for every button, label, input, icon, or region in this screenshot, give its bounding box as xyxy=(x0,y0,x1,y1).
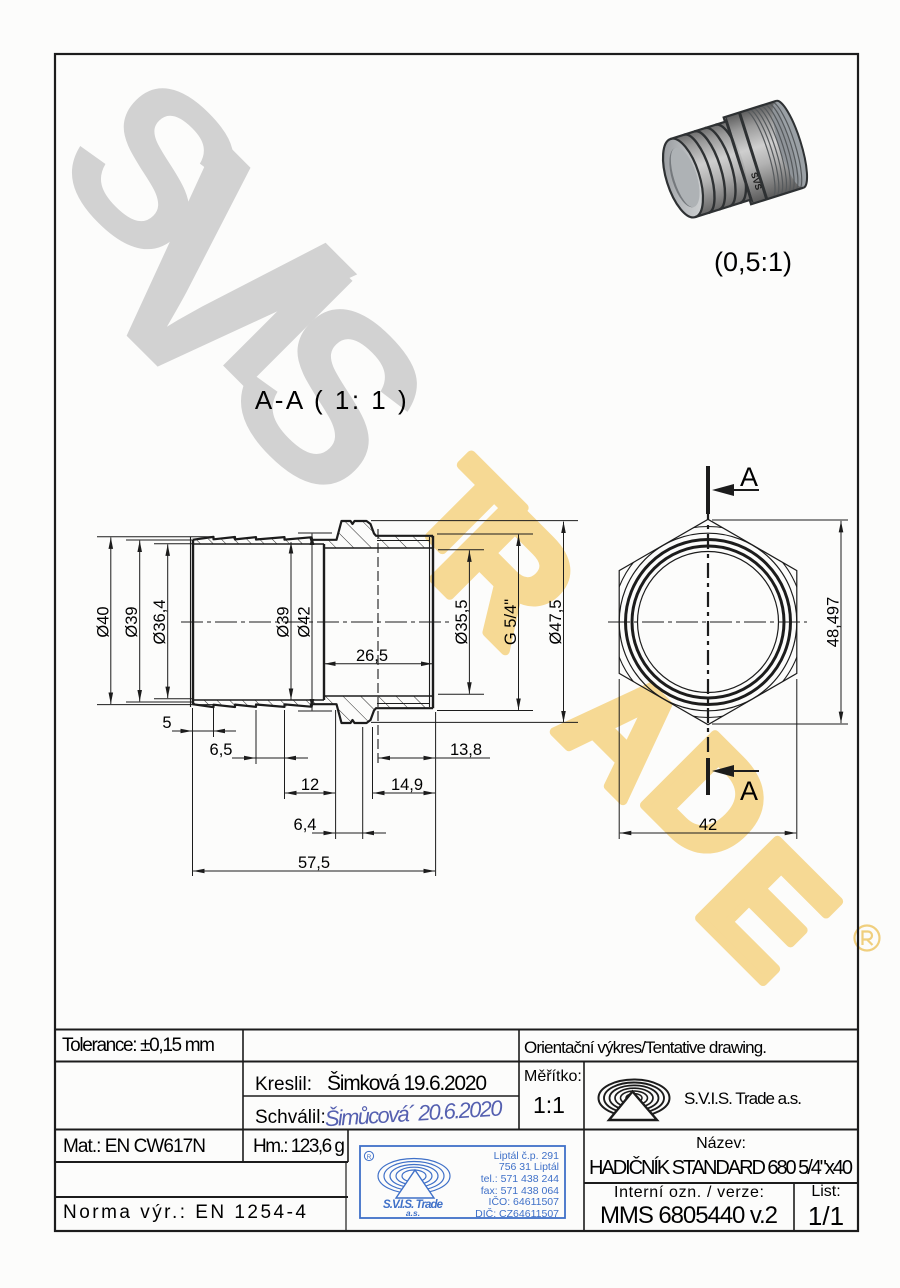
svg-text:12: 12 xyxy=(301,776,319,794)
svg-text:Orientační výkres/Tentative dr: Orientační výkres/Tentative drawing. xyxy=(524,1038,767,1057)
svg-text:R: R xyxy=(367,1154,372,1161)
svg-text:Ø47,5: Ø47,5 xyxy=(547,600,565,645)
svg-text:Ø40: Ø40 xyxy=(94,606,112,637)
svg-text:HADIČNÍK STANDARD 680 5/4"x40: HADIČNÍK STANDARD 680 5/4"x40 xyxy=(589,1156,853,1179)
svg-text:1/1: 1/1 xyxy=(808,1201,844,1231)
svg-text:42: 42 xyxy=(699,816,717,834)
svg-text:Ø35,5: Ø35,5 xyxy=(453,600,471,645)
svg-text:A-A ( 1: 1 ): A-A ( 1: 1 ) xyxy=(255,385,409,415)
svg-text:Mat.: EN CW617N: Mat.: EN CW617N xyxy=(63,1136,206,1157)
svg-text:Název:: Název: xyxy=(696,1135,746,1152)
svg-text:Tolerance: ±0,15 mm: Tolerance: ±0,15 mm xyxy=(62,1035,215,1056)
svg-text:S.V.I.S. Trade a.s.: S.V.I.S. Trade a.s. xyxy=(684,1089,802,1108)
svg-text:A: A xyxy=(740,462,758,492)
svg-text:6,5: 6,5 xyxy=(210,741,233,759)
svg-text:756 31 Liptál: 756 31 Liptál xyxy=(499,1161,559,1173)
svg-text:Měřítko:: Měřítko: xyxy=(524,1068,582,1085)
svg-text:A: A xyxy=(740,776,758,806)
svg-text:Ø36,4: Ø36,4 xyxy=(151,600,169,645)
svg-text:13,8: 13,8 xyxy=(450,741,482,759)
svg-text:26,5: 26,5 xyxy=(356,647,388,665)
svg-text:MMS 6805440 v.2: MMS 6805440 v.2 xyxy=(600,1202,778,1229)
svg-text:Ø39: Ø39 xyxy=(275,606,293,637)
svg-text:DIČ: CZ64611507: DIČ: CZ64611507 xyxy=(475,1207,559,1220)
svg-text:48,497: 48,497 xyxy=(825,597,843,647)
svg-text:tel.: 571 438 244: tel.: 571 438 244 xyxy=(481,1173,559,1185)
svg-text:Hm.: 123,6 g: Hm.: 123,6 g xyxy=(253,1136,345,1157)
svg-text:Ø42: Ø42 xyxy=(296,606,314,637)
svg-text:Kreslil:: Kreslil: xyxy=(255,1074,312,1095)
svg-text:14,9: 14,9 xyxy=(391,776,423,794)
svg-text:6,4: 6,4 xyxy=(294,816,317,834)
svg-text:G 5/4": G 5/4" xyxy=(502,599,520,645)
svg-text:Schválil:: Schválil: xyxy=(255,1107,326,1128)
svg-text:57,5: 57,5 xyxy=(298,854,330,872)
svg-text:Šimková 19.6.2020: Šimková 19.6.2020 xyxy=(327,1072,487,1095)
svg-text:5: 5 xyxy=(162,714,171,732)
svg-text:IČO: 64611507: IČO: 64611507 xyxy=(489,1195,560,1208)
svg-text:(0,5:1): (0,5:1) xyxy=(714,247,792,277)
svg-text:List:: List: xyxy=(811,1183,840,1200)
svg-text:Ø39: Ø39 xyxy=(123,606,141,637)
svg-text:1:1: 1:1 xyxy=(533,1092,565,1118)
svg-text:a.s.: a.s. xyxy=(406,1208,420,1218)
svg-text:Interní ozn. / verze:: Interní ozn. / verze: xyxy=(614,1184,764,1201)
